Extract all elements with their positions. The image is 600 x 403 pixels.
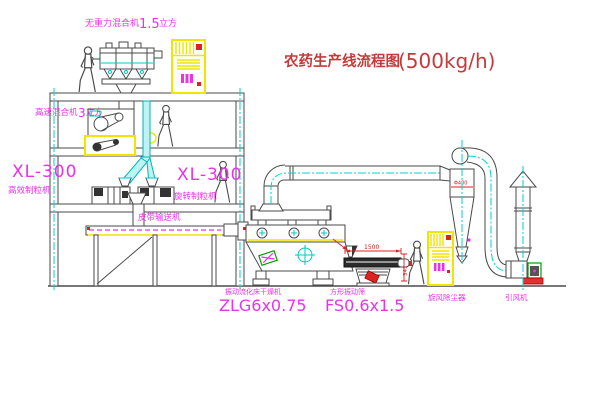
label-belt-conveyor: 皮带输送机 <box>138 212 181 223</box>
control-cabinet-upper <box>172 40 205 93</box>
control-cabinet-ground <box>428 232 453 285</box>
label-cyclone-dust-collector: 旋风除尘器 <box>428 292 466 302</box>
title-capacity: (500kg/h) <box>398 49 495 73</box>
label-screen-name: 方形振动筛 <box>330 287 365 296</box>
title-text: 农药生产线流程图 <box>283 52 400 70</box>
label-granulator-left-model: XL-300 <box>12 162 77 182</box>
label-top-mixer-name: 无重力混合机 <box>85 17 139 29</box>
label-top-mixer-unit: 立方 <box>159 17 177 29</box>
dimension-screen-length: 1500 <box>364 244 379 251</box>
label-screen-model: FS0.6x1.5 <box>325 296 404 315</box>
cad-process-flow-drawing: Φ400 无重力混合机 1.5 立方 高速混合机 <box>0 0 600 403</box>
label-granulator-right-name: 旋转制粒机 <box>174 191 217 202</box>
label-induced-draft-fan: 引风机 <box>505 292 528 302</box>
label-granulator-right-model: XL-300 <box>177 165 242 185</box>
label-granulator-left-name: 高效制粒机 <box>8 185 51 196</box>
label-high-speed-mixer-name: 高速混合机 <box>35 107 78 118</box>
label-high-speed-mixer-unit: 立方 <box>86 107 103 118</box>
label-top-mixer-size: 1.5 <box>139 17 160 32</box>
label-dryer-model: ZLG6x0.75 <box>219 296 307 315</box>
label-cyclone-diameter: Φ400 <box>454 181 467 187</box>
label-dryer-name: 振动流化床干燥机 <box>225 287 281 296</box>
dimension-screen-height: 341 <box>403 266 409 277</box>
label-high-speed-mixer-size: 3 <box>78 106 86 120</box>
drawing-canvas: Φ400 无重力混合机 1.5 立方 高速混合机 <box>0 0 600 403</box>
